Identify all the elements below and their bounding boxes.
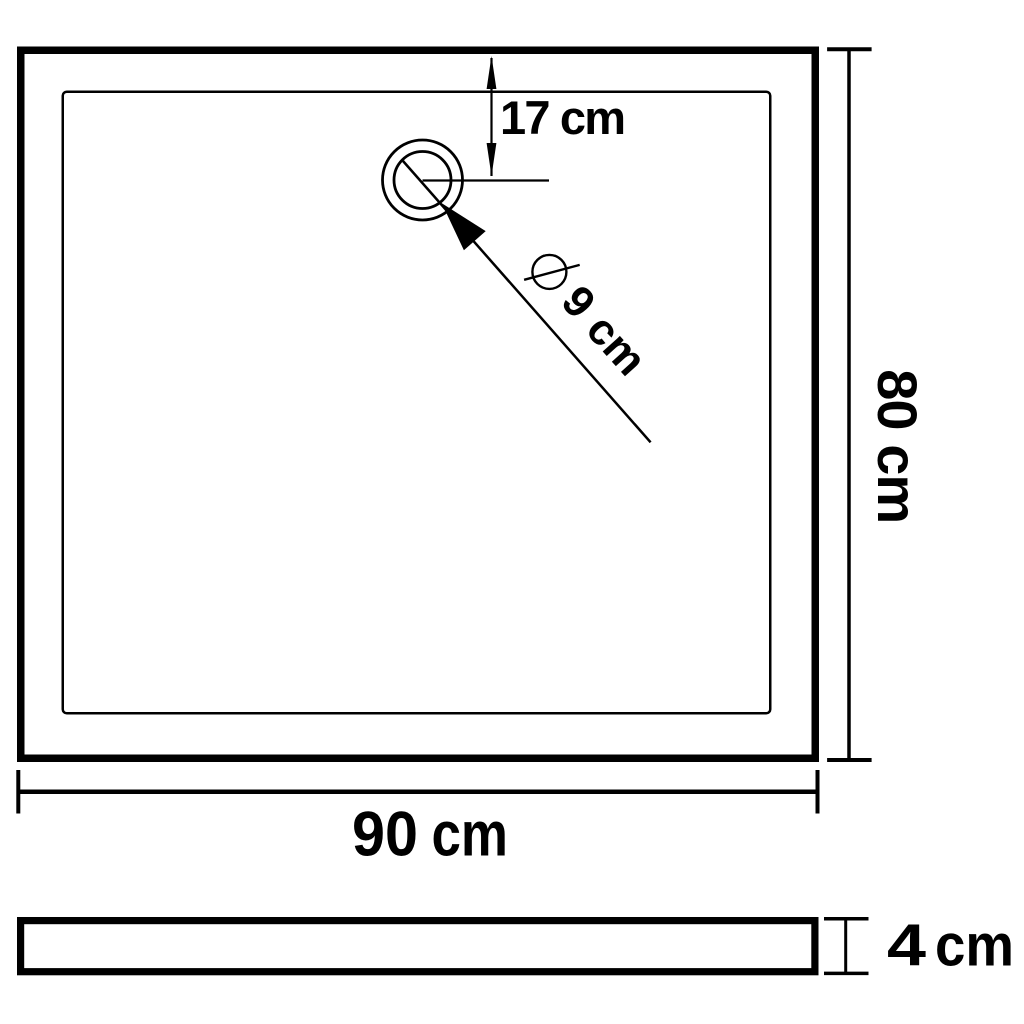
svg-text:90: 90 [352,800,418,870]
svg-text:17 cm: 17 cm [500,91,626,144]
svg-text:80 cm: 80 cm [866,369,929,524]
svg-text:4: 4 [887,913,926,979]
svg-text:cm: cm [935,913,1014,979]
svg-text:cm: cm [432,800,509,870]
